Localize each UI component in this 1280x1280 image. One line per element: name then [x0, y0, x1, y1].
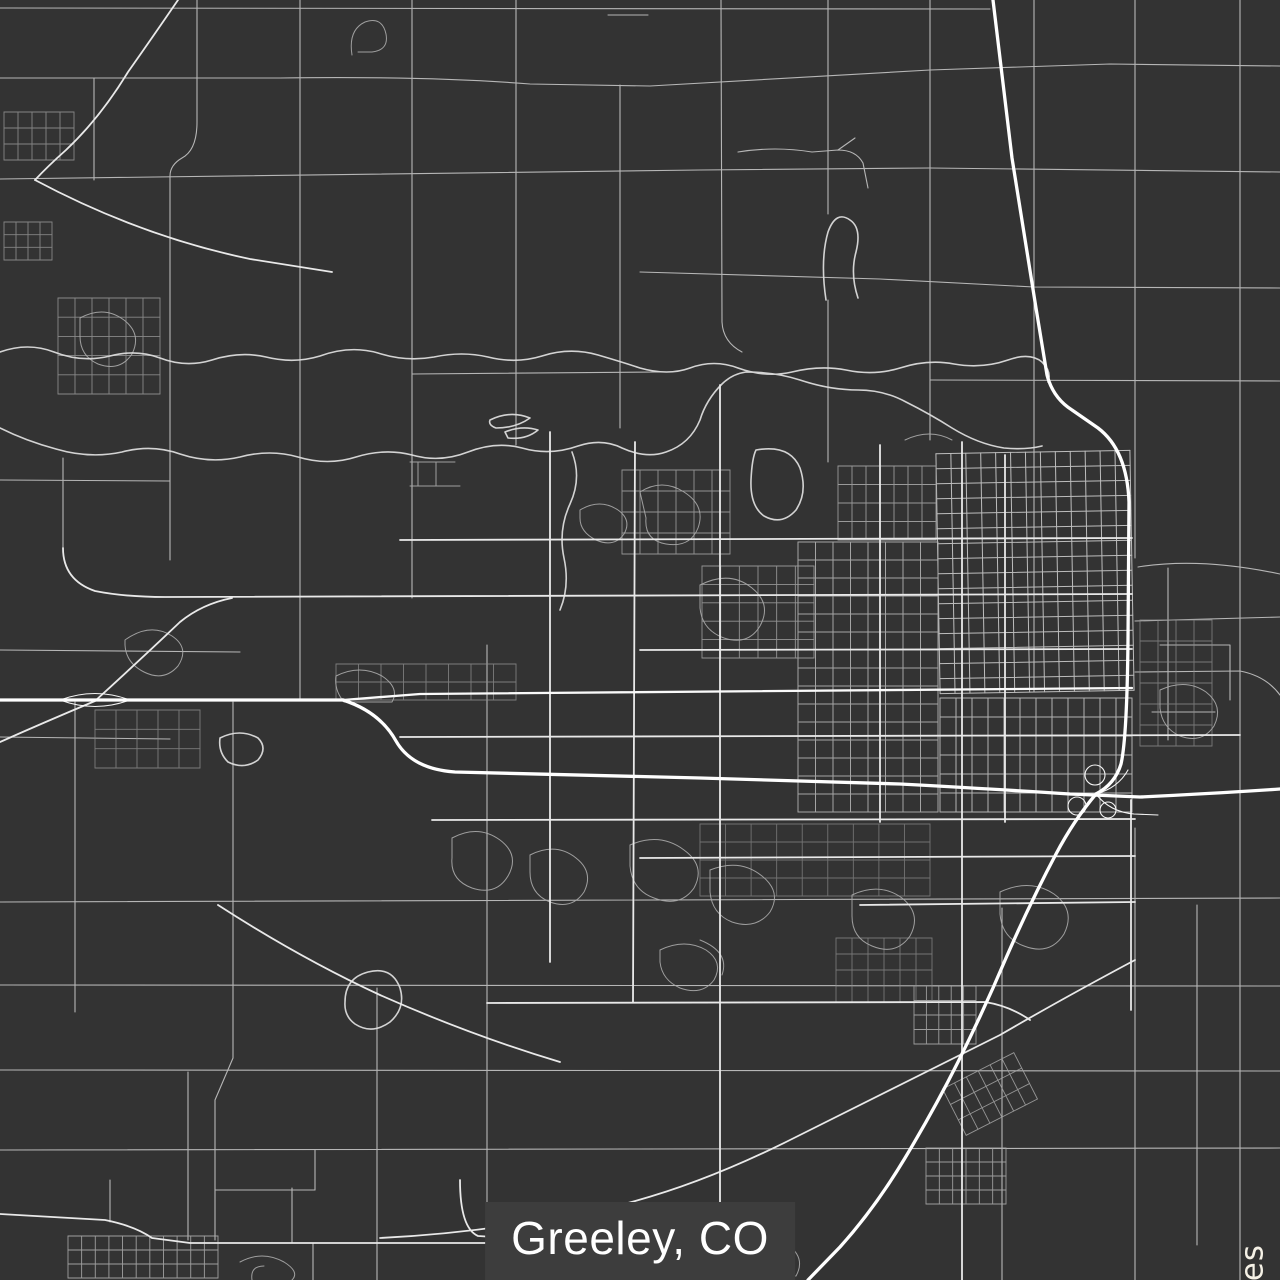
map-title: Greeley, CO: [511, 1212, 769, 1264]
map-title-banner: Greeley, CO: [485, 1202, 795, 1280]
map-stage: Greeley, CO ©Sperling's BestPlaces: [0, 0, 1280, 1280]
map-canvas: [0, 0, 1280, 1280]
watermark: ©Sperling's BestPlaces: [1234, 1244, 1270, 1280]
